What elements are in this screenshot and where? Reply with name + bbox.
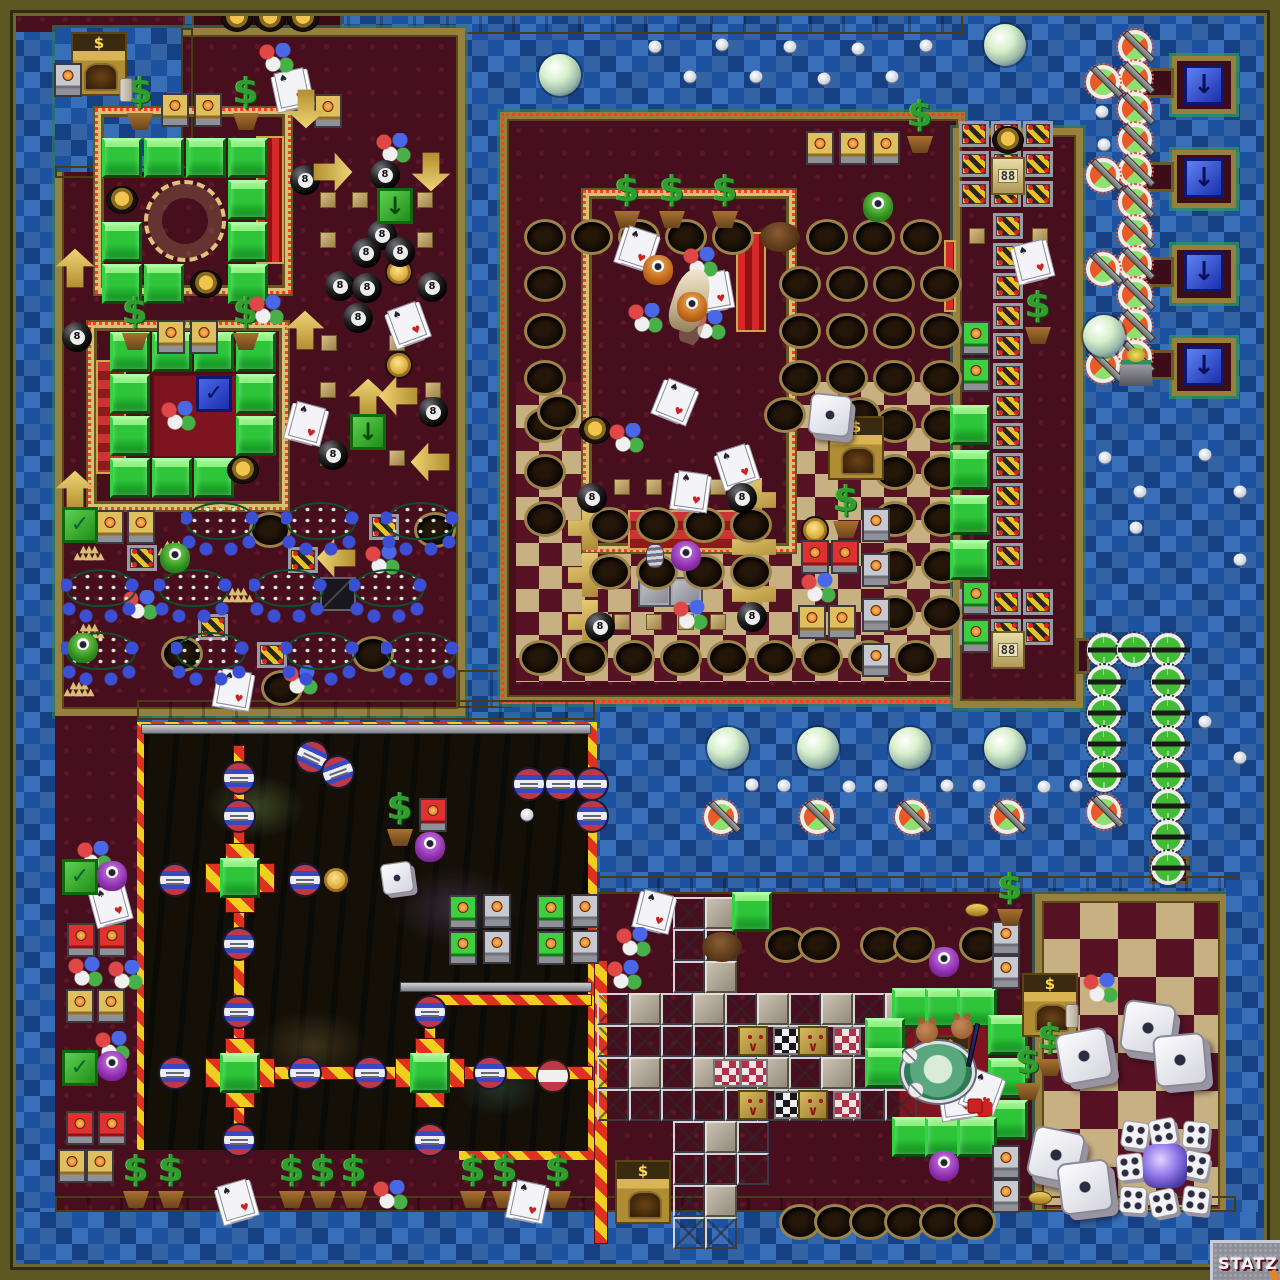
- pearl-small: [1134, 486, 1147, 499]
- poker-chips: [258, 43, 294, 73]
- gold-machine: [96, 510, 124, 544]
- poker-chips: [672, 600, 708, 630]
- poker-chips: [608, 423, 644, 453]
- hole: [683, 507, 725, 543]
- hazard-crate: [993, 423, 1023, 449]
- pearl-small: [746, 779, 759, 792]
- green-gem: [102, 222, 142, 262]
- pearl-small: [1098, 139, 1111, 152]
- gold-coin: [190, 270, 222, 298]
- green-arrow-tile[interactable]: ↓: [377, 188, 413, 224]
- dice-small: [1115, 1152, 1145, 1182]
- eight-ball: 8: [585, 612, 615, 642]
- hole: [730, 554, 772, 590]
- pearl-large: [984, 24, 1026, 66]
- hazard-crate: [993, 543, 1023, 569]
- green-gem: [228, 222, 268, 262]
- dice-small: [1147, 1116, 1178, 1147]
- roulette-wheel-green: [1151, 696, 1185, 730]
- hole: [524, 313, 566, 349]
- silver-machine: [862, 598, 890, 632]
- steel-beam: [141, 724, 591, 734]
- pearl-small: [1099, 452, 1112, 465]
- small-tile: [646, 479, 662, 495]
- hazard-crate: [1023, 619, 1053, 645]
- pearl-small: [684, 71, 697, 84]
- hole: [920, 313, 962, 349]
- stone-block: [821, 993, 853, 1025]
- hole: [826, 266, 868, 302]
- hazard-crate: [1023, 589, 1053, 615]
- green-gem: [236, 416, 276, 456]
- hole: [613, 640, 655, 676]
- face-tile: ∨: [798, 1090, 828, 1120]
- striped-roller: [222, 1123, 256, 1157]
- gold-machine: [828, 605, 856, 639]
- stone-block: [705, 1185, 737, 1217]
- green-gem: [950, 495, 990, 535]
- eight-ball: 8: [418, 397, 448, 427]
- pearl-small: [716, 39, 729, 52]
- stone-block: [597, 993, 629, 1025]
- hole: [801, 640, 843, 676]
- east-water-column: [1226, 880, 1272, 1216]
- blue-check-tile[interactable]: ✓: [196, 376, 232, 412]
- money-plant: $: [902, 97, 938, 153]
- green-gem: [410, 1053, 450, 1093]
- stone-block: [821, 1057, 853, 1089]
- dice-large: [379, 860, 414, 895]
- money-plant: $: [1020, 288, 1056, 344]
- gold-machine: [839, 131, 867, 165]
- small-tile: [417, 232, 433, 248]
- pearl-small: [1038, 781, 1051, 794]
- gold-coin: [992, 126, 1024, 154]
- card-table: [61, 567, 139, 623]
- lying-coin: [965, 903, 989, 917]
- card-table: [281, 630, 359, 686]
- pearl-large: [797, 727, 839, 769]
- face-tile: ∨: [738, 1026, 768, 1056]
- hole: [524, 360, 566, 396]
- spring: [646, 544, 664, 568]
- hole: [826, 313, 868, 349]
- roulette-wheel-red: [1086, 158, 1120, 192]
- money-plant: $: [828, 482, 864, 538]
- green-gem: [186, 138, 226, 178]
- red-machine: [66, 1111, 94, 1145]
- hazard-crate: [993, 303, 1023, 329]
- small-tile: [425, 382, 441, 398]
- hazard-crate: [1023, 151, 1053, 177]
- eight-ball: 8: [62, 322, 92, 352]
- lying-coin: [1028, 1191, 1052, 1205]
- striped-roller: [544, 767, 578, 801]
- eight-ball: 8: [318, 440, 348, 470]
- hazard-crate: [993, 333, 1023, 359]
- roulette-wheel-red: [1086, 65, 1120, 99]
- gold-coin: [254, 4, 286, 32]
- stone-block: [597, 1057, 629, 1089]
- slot-machine: $: [615, 1160, 671, 1224]
- hazard-crate: [993, 483, 1023, 509]
- red-machine: [98, 923, 126, 957]
- pearl-small: [1234, 752, 1247, 765]
- hazard-crate: [1023, 181, 1053, 207]
- pearl-large: [539, 54, 581, 96]
- pearl-small: [778, 780, 791, 793]
- roulette-wheel-green: [1087, 633, 1121, 667]
- pearl-small: [1234, 554, 1247, 567]
- roulette-wheel-green: [1151, 633, 1185, 667]
- hole: [571, 219, 613, 255]
- stone-block: [661, 993, 693, 1025]
- money-plant: $: [336, 1152, 372, 1208]
- hole: [779, 313, 821, 349]
- striped-roller: [413, 995, 447, 1029]
- pearl-small: [973, 780, 986, 793]
- hole: [826, 360, 868, 396]
- pearl-small: [750, 71, 763, 84]
- grunt-purple[interactable]: [97, 861, 127, 891]
- dirt-mound: [702, 932, 742, 962]
- stone-block: [705, 961, 737, 993]
- green-machine: [962, 619, 990, 653]
- dirt-mound: [760, 222, 800, 252]
- stone-block: [673, 897, 705, 929]
- roulette-wheel-red: [1118, 92, 1152, 126]
- counter-box: 88: [991, 157, 1025, 195]
- silver-machine: [483, 930, 511, 964]
- grunt-green[interactable]: [68, 633, 98, 663]
- grunt-in-hole[interactable]: [1119, 348, 1153, 386]
- dice-large: [1054, 1026, 1114, 1086]
- stone-block: [673, 1217, 705, 1249]
- hole: [806, 219, 848, 255]
- coin-medallion: [385, 351, 413, 379]
- stone-block: [629, 1025, 661, 1057]
- candy-path-h2: [430, 994, 592, 1006]
- gold-machine: [157, 320, 185, 354]
- card-table: [381, 500, 459, 556]
- striped-roller: [158, 1056, 192, 1090]
- stone-block: [629, 1089, 661, 1121]
- roulette-wheel-red: [895, 800, 929, 834]
- hole: [779, 360, 821, 396]
- small-tile: [320, 382, 336, 398]
- green-gem: [144, 138, 184, 178]
- gold-coin: [227, 456, 259, 484]
- hole: [754, 640, 796, 676]
- pearl-small: [818, 73, 831, 86]
- green-machine: [449, 895, 477, 929]
- gold-machine: [66, 989, 94, 1023]
- roulette-wheel-red: [1118, 61, 1152, 95]
- hole: [660, 640, 702, 676]
- grunt-purple[interactable]: [929, 947, 959, 977]
- dice-large: [807, 392, 853, 438]
- hole: [873, 313, 915, 349]
- green-gem: [950, 450, 990, 490]
- gold-fan: [144, 180, 226, 262]
- striped-roller: [222, 927, 256, 961]
- checker-tile-bw: [773, 1027, 801, 1055]
- eight-ball: 8: [727, 483, 757, 513]
- gold-machine: [86, 1149, 114, 1183]
- pearl-small: [1234, 486, 1247, 499]
- stone-block: [661, 1089, 693, 1121]
- pearl-small: [1096, 106, 1109, 119]
- pearl-small: [1070, 780, 1083, 793]
- green-machine: [537, 931, 565, 965]
- dice-large: [1056, 1158, 1114, 1216]
- hazard-crate: [993, 363, 1023, 389]
- hazard-crate: [993, 393, 1023, 419]
- grunt-green[interactable]: [863, 192, 893, 222]
- blue-arrow-switch[interactable]: ↓: [1184, 65, 1224, 105]
- silver-machine: [992, 921, 1020, 955]
- card-table: [171, 630, 249, 686]
- blue-arrow-switch[interactable]: ↓: [1184, 158, 1224, 198]
- stone-block: [673, 1153, 705, 1185]
- green-check-tile[interactable]: ✓: [62, 507, 98, 543]
- hazard-crate: [959, 121, 989, 147]
- silver-machine: [483, 894, 511, 928]
- gold-machine: [127, 510, 155, 544]
- green-check-tile[interactable]: ✓: [62, 1050, 98, 1086]
- eight-ball: 8: [385, 237, 415, 267]
- dice-small: [1181, 1120, 1210, 1149]
- stone-block: [673, 1121, 705, 1153]
- striped-roller: [222, 995, 256, 1029]
- eight-ball: 8: [370, 160, 400, 190]
- stone-block: [597, 1089, 629, 1121]
- card-table: [249, 567, 327, 623]
- green-gem: [152, 458, 192, 498]
- green-gem: [220, 858, 260, 898]
- stone-block: [693, 1025, 725, 1057]
- roulette-wheel-red: [1118, 30, 1152, 64]
- hazard-crate: [1023, 121, 1053, 147]
- hole: [636, 507, 678, 543]
- striped-roller: [353, 1056, 387, 1090]
- gold-machine: [194, 93, 222, 127]
- silver-machine: [54, 63, 82, 97]
- grunt-purple[interactable]: [929, 1151, 959, 1181]
- silver-machine: [862, 643, 890, 677]
- stone-block: [705, 1153, 737, 1185]
- gold-machine: [798, 605, 826, 639]
- hole: [589, 554, 631, 590]
- eight-ball: 8: [325, 271, 355, 301]
- eight-ball: 8: [352, 273, 382, 303]
- card-table: [181, 500, 259, 556]
- stone-block: [629, 1057, 661, 1089]
- poker-chips: [375, 133, 411, 163]
- striped-roller: [288, 1056, 322, 1090]
- green-gem: [228, 180, 268, 220]
- stone-block: [629, 993, 661, 1025]
- hole: [524, 501, 566, 537]
- roulette-wheel-green: [1151, 789, 1185, 823]
- roulette-wheel-green: [1087, 758, 1121, 792]
- roulette-wheel-red: [800, 800, 834, 834]
- grunt-green[interactable]: [160, 543, 190, 573]
- hole: [524, 454, 566, 490]
- spikes: ▲▲▲: [79, 545, 96, 555]
- red-machine: [831, 540, 859, 574]
- stone-block: [693, 1089, 725, 1121]
- gold-coin: [579, 416, 611, 444]
- green-check-tile[interactable]: ✓: [62, 859, 98, 895]
- hole: [920, 266, 962, 302]
- blue-arrow-switch[interactable]: ↓: [1184, 252, 1224, 292]
- stone-block: [705, 1217, 737, 1249]
- stone-block: [673, 1185, 705, 1217]
- hole: [707, 640, 749, 676]
- hazard-crate: [959, 151, 989, 177]
- gold-machine: [97, 989, 125, 1023]
- money-plant: $: [118, 1152, 154, 1208]
- small-tile: [710, 614, 726, 630]
- pearl-small: [941, 780, 954, 793]
- money-plant: $: [540, 1152, 576, 1208]
- dice-large: [1152, 1032, 1208, 1088]
- striped-roller-red: [536, 1059, 570, 1093]
- roulette-wheel-red: [1118, 216, 1152, 250]
- eight-ball: 8: [737, 602, 767, 632]
- roulette-wheel-green: [1151, 758, 1185, 792]
- green-machine: [962, 581, 990, 615]
- poker-chips: [372, 1180, 408, 1210]
- small-tile: [969, 228, 985, 244]
- playing-cards: [674, 470, 709, 510]
- hazard-crate: [993, 213, 1023, 239]
- stone-block: [673, 929, 705, 961]
- roulette-wheel-red: [1118, 123, 1152, 157]
- small-tile: [352, 192, 368, 208]
- money-plant: $: [382, 790, 418, 846]
- white-chip: [908, 1082, 924, 1098]
- roulette-wheel-red: [704, 800, 738, 834]
- pearl-small: [784, 41, 797, 54]
- green-machine: [962, 358, 990, 392]
- small-tile: [321, 335, 337, 351]
- small-tile: [710, 479, 726, 495]
- gold-machine: [806, 131, 834, 165]
- game-map[interactable]: ∨∨∨∨8888$$$$$$$$$$$$$$$$$$$$$$$$$$$88888…: [0, 0, 1280, 1280]
- eight-ball: 8: [577, 483, 607, 513]
- stone-block: [725, 993, 757, 1025]
- hole: [779, 266, 821, 302]
- green-arrow-tile[interactable]: ↓: [350, 414, 386, 450]
- teddy-bear: [916, 1021, 938, 1043]
- hole: [524, 219, 566, 255]
- purple-gem: [1143, 1144, 1187, 1188]
- stone-block: [661, 1057, 693, 1089]
- roulette-wheel-green: [1151, 851, 1185, 885]
- grunt-orange[interactable]: [677, 292, 707, 322]
- hazard-crate: [991, 589, 1021, 615]
- green-gem: [110, 458, 150, 498]
- eight-ball: 8: [417, 272, 447, 302]
- money-plant: $: [153, 1152, 189, 1208]
- green-gem: [865, 1048, 905, 1088]
- pearl-small: [843, 781, 856, 794]
- small-tile: [614, 614, 630, 630]
- roulette-wheel-red: [990, 800, 1024, 834]
- silver-machine: [992, 1145, 1020, 1179]
- stone-block: [693, 993, 725, 1025]
- face-tile: ∨: [738, 1090, 768, 1120]
- gold-coin: [106, 186, 138, 214]
- hole: [519, 640, 561, 676]
- pearl-small: [1130, 522, 1143, 535]
- green-machine: [537, 895, 565, 929]
- teddy-bear: [951, 1017, 973, 1039]
- red-machine: [801, 540, 829, 574]
- money-plant: $: [707, 172, 743, 228]
- grunt-purple[interactable]: [97, 1051, 127, 1081]
- dice-small: [1119, 1186, 1148, 1215]
- green-gem: [950, 540, 990, 580]
- striped-roller: [288, 863, 322, 897]
- roulette-wheel-green: [1117, 633, 1151, 667]
- stone-block: [705, 1121, 737, 1153]
- statz-button[interactable]: STATZ: [1210, 1240, 1280, 1280]
- hazard-crate: [993, 513, 1023, 539]
- grunt-orange[interactable]: [643, 255, 673, 285]
- blue-arrow-switch[interactable]: ↓: [1184, 346, 1224, 386]
- gold-machine: [161, 93, 189, 127]
- green-machine: [962, 321, 990, 355]
- striped-roller: [575, 767, 609, 801]
- roulette-wheel-green: [1151, 727, 1185, 761]
- hole: [566, 640, 608, 676]
- hole: [954, 1204, 996, 1240]
- hall-south-wall: [137, 700, 595, 720]
- roulette-wheel-red: [1118, 154, 1152, 188]
- small-tile: [320, 192, 336, 208]
- pearl-small: [852, 43, 865, 56]
- hole: [920, 360, 962, 396]
- stone-block: [789, 1057, 821, 1089]
- pearl-large: [984, 727, 1026, 769]
- gold-machine: [58, 1149, 86, 1183]
- poker-chips: [160, 401, 196, 431]
- green-gem: [220, 1053, 260, 1093]
- eight-ball: 8: [343, 303, 373, 333]
- hole: [895, 640, 937, 676]
- money-plant: $: [992, 870, 1028, 926]
- stone-block: [737, 1121, 769, 1153]
- green-gem: [110, 374, 150, 414]
- pearl-large: [707, 727, 749, 769]
- pearl-small: [1199, 449, 1212, 462]
- striped-roller: [222, 761, 256, 795]
- grunt-purple[interactable]: [671, 541, 701, 571]
- roulette-wheel-red: [1118, 185, 1152, 219]
- red-machine: [98, 1111, 126, 1145]
- stone-block: [597, 1025, 629, 1057]
- roulette-wheel-green: [1151, 665, 1185, 699]
- grunt-purple[interactable]: [415, 832, 445, 862]
- white-chip: [902, 1048, 918, 1064]
- poker-chips: [615, 927, 651, 957]
- roulette-wheel-green: [1087, 727, 1121, 761]
- poker-chips: [1082, 973, 1118, 1003]
- roulette-wheel-red: [1087, 795, 1121, 829]
